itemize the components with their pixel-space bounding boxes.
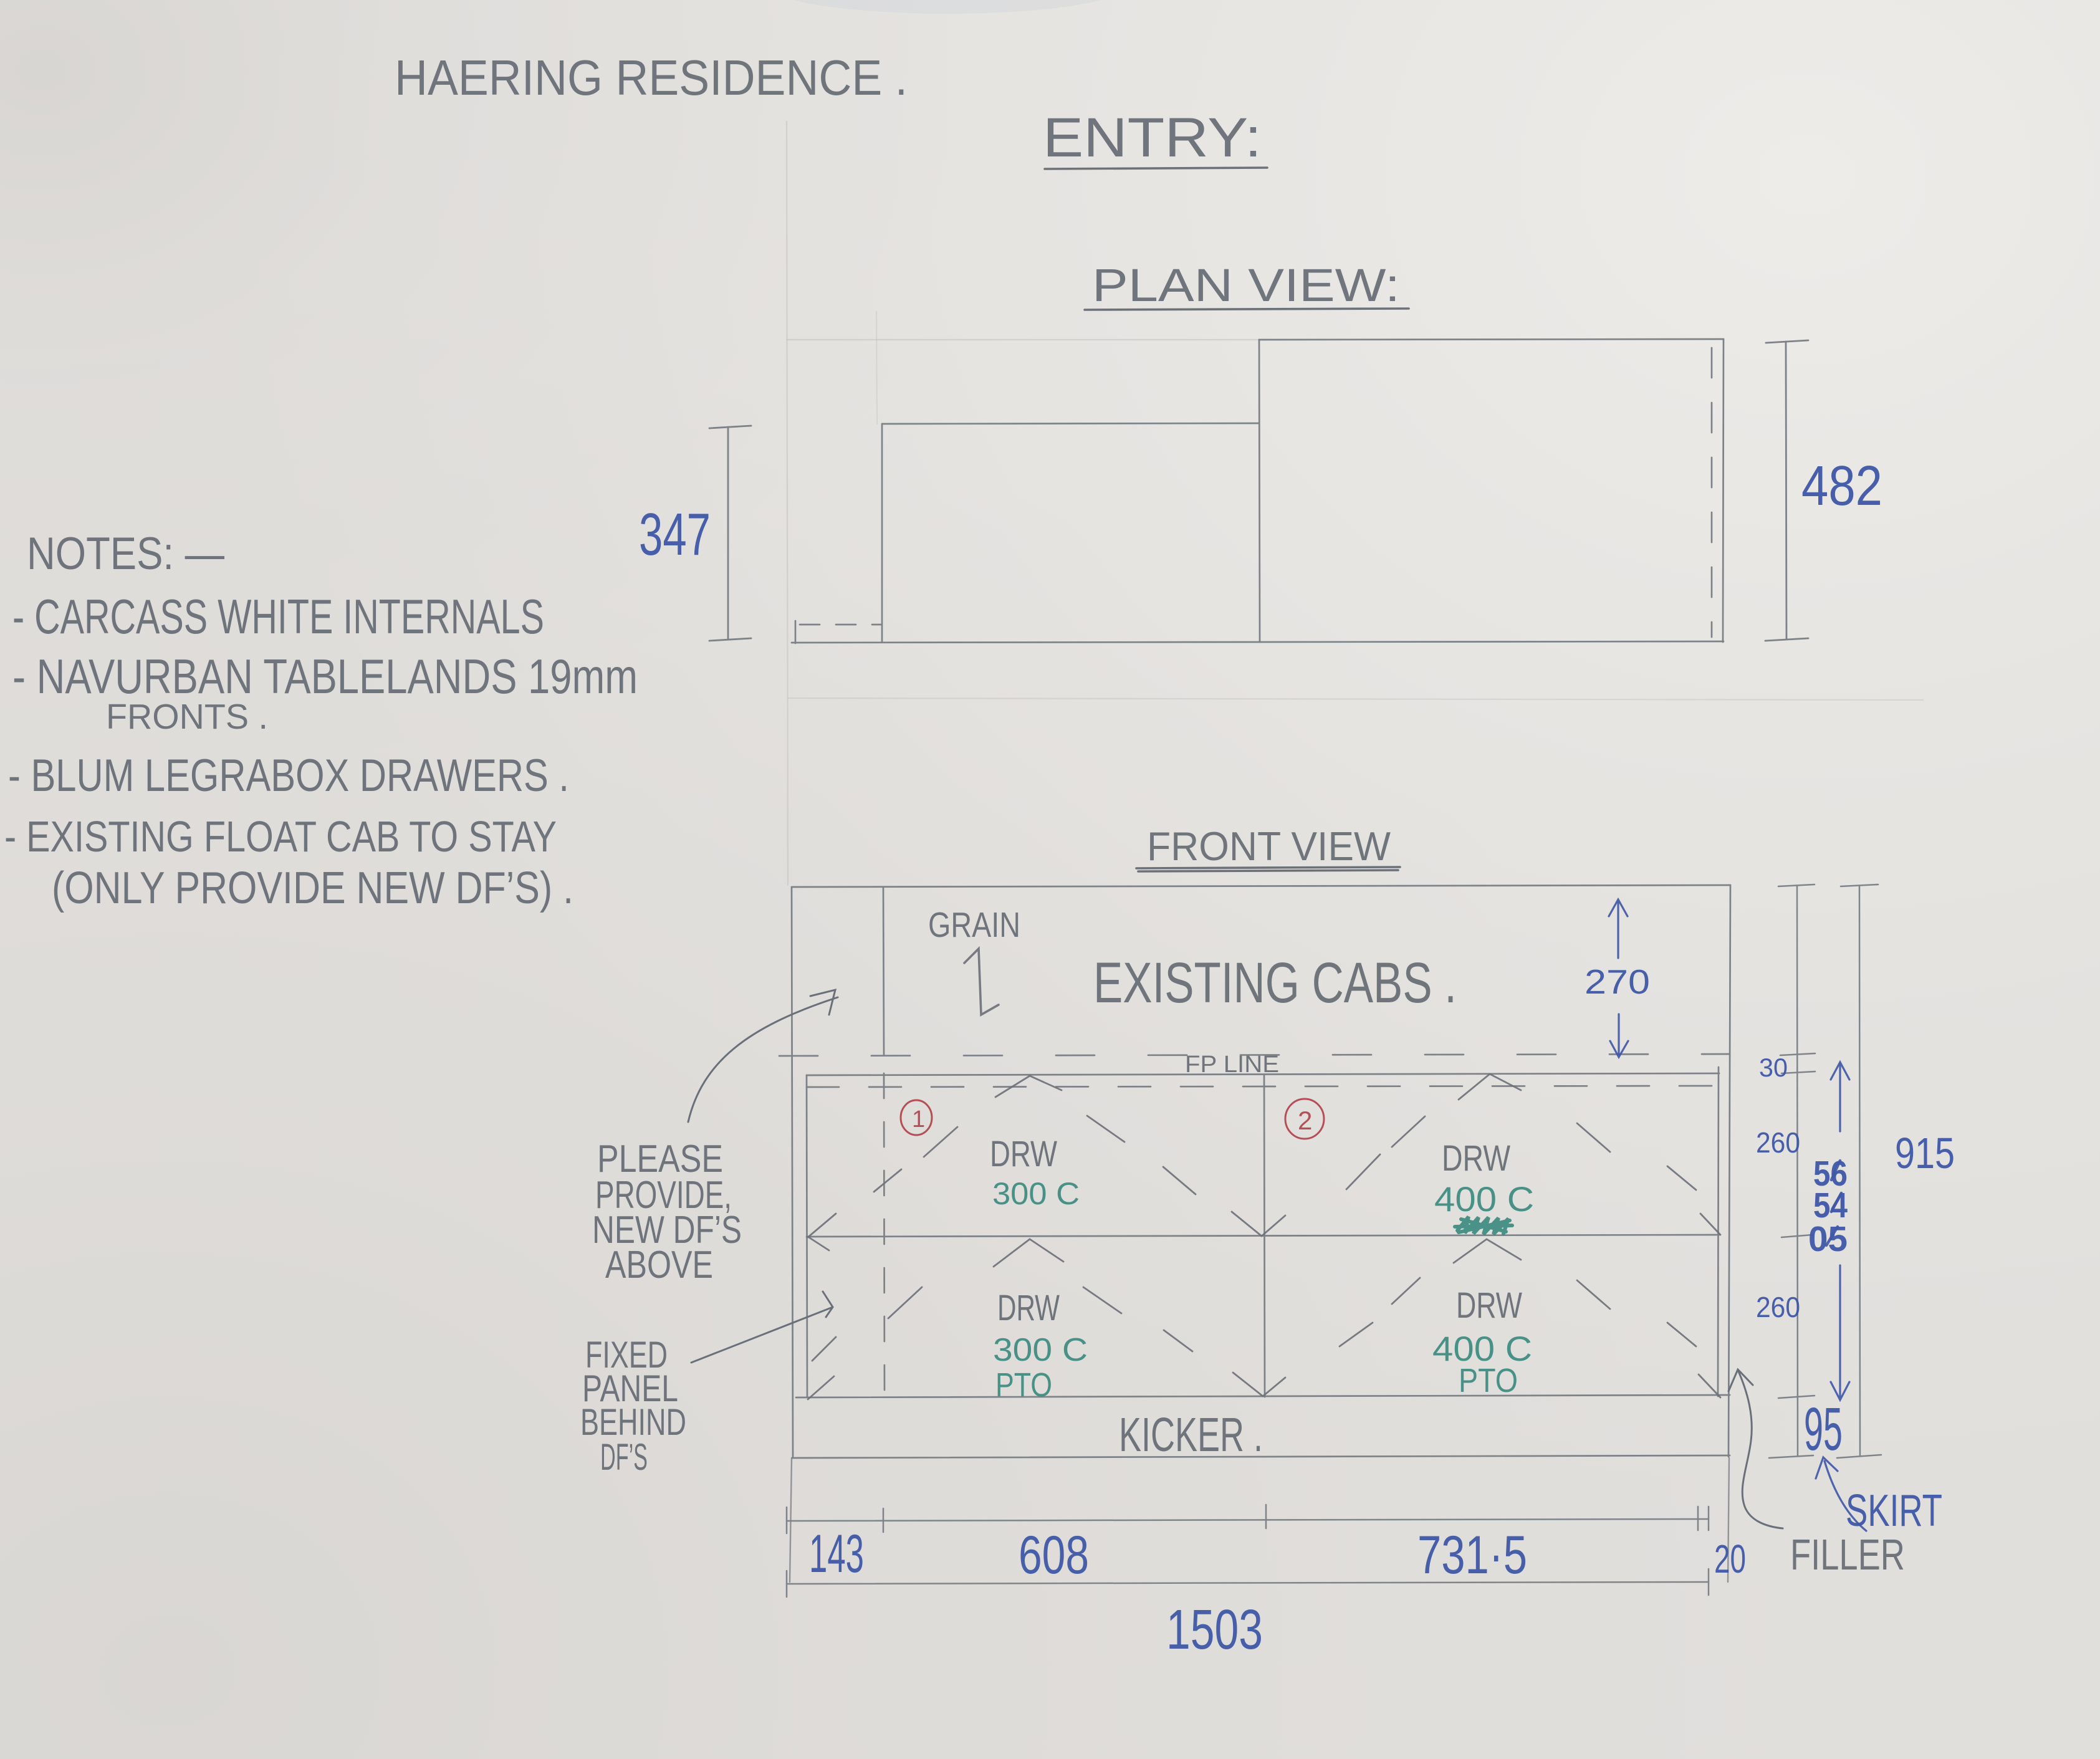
- svg-text:731·5: 731·5: [1417, 1525, 1527, 1585]
- svg-text:DRW: DRW: [1442, 1138, 1510, 1179]
- svg-text:347: 347: [639, 501, 711, 568]
- svg-text:- EXISTING FLOAT CAB TO STAY: - EXISTING FLOAT CAB TO STAY: [4, 812, 557, 861]
- svg-text:NOTES: —: NOTES: —: [27, 529, 224, 579]
- svg-text:608: 608: [1019, 1525, 1089, 1585]
- svg-text:400 C: 400 C: [1434, 1179, 1534, 1219]
- svg-text:300 C: 300 C: [993, 1332, 1088, 1368]
- svg-text:1503: 1503: [1166, 1599, 1263, 1661]
- svg-text:2: 2: [1298, 1106, 1312, 1135]
- svg-text:20: 20: [1714, 1536, 1746, 1581]
- svg-text:FILLER: FILLER: [1790, 1530, 1905, 1579]
- svg-text:PTO: PTO: [995, 1366, 1052, 1404]
- svg-text:270: 270: [1585, 962, 1650, 1001]
- svg-text:482: 482: [1801, 455, 1882, 517]
- svg-text:FRONT VIEW: FRONT VIEW: [1147, 823, 1391, 869]
- svg-text:95: 95: [1804, 1395, 1843, 1463]
- svg-text:(ONLY PROVIDE NEW DF’S) .: (ONLY PROVIDE NEW DF’S) .: [52, 863, 573, 913]
- svg-text:EXISTING CABS .: EXISTING CABS .: [1093, 951, 1457, 1015]
- svg-text:30: 30: [1759, 1053, 1788, 1082]
- svg-text:FP LINE: FP LINE: [1185, 1052, 1279, 1078]
- svg-text:1: 1: [912, 1106, 925, 1133]
- svg-text:HAERING RESIDENCE .: HAERING RESIDENCE .: [395, 50, 908, 105]
- svg-text:143: 143: [809, 1524, 864, 1584]
- svg-text:- CARCASS WHITE INTERNALS: - CARCASS WHITE INTERNALS: [12, 589, 544, 644]
- svg-text:SKIRT: SKIRT: [1846, 1486, 1942, 1536]
- svg-text:05: 05: [1808, 1219, 1848, 1259]
- svg-text:915: 915: [1895, 1129, 1955, 1177]
- svg-text:DRW: DRW: [997, 1288, 1060, 1328]
- svg-text:ENTRY:: ENTRY:: [1043, 106, 1262, 168]
- svg-text:DRW: DRW: [1456, 1285, 1522, 1326]
- svg-text:260: 260: [1756, 1126, 1800, 1159]
- svg-text:PTO: PTO: [1459, 1362, 1518, 1399]
- svg-text:- NAVURBAN TABLELANDS 19mm: - NAVURBAN TABLELANDS 19mm: [12, 649, 638, 704]
- svg-text:DF’S: DF’S: [600, 1436, 648, 1478]
- svg-text:ABOVE: ABOVE: [605, 1244, 713, 1287]
- svg-text:GRAIN: GRAIN: [928, 905, 1020, 945]
- svg-text:PLAN VIEW:: PLAN VIEW:: [1092, 259, 1400, 311]
- svg-text:FRONTS .: FRONTS .: [106, 697, 268, 737]
- svg-text:DRW: DRW: [990, 1134, 1057, 1174]
- svg-text:- BLUM LEGRABOX DRAWERS .: - BLUM LEGRABOX DRAWERS .: [8, 750, 569, 801]
- svg-text:KICKER .: KICKER .: [1119, 1408, 1263, 1462]
- svg-text:260: 260: [1756, 1291, 1800, 1323]
- svg-text:300 C: 300 C: [992, 1176, 1080, 1211]
